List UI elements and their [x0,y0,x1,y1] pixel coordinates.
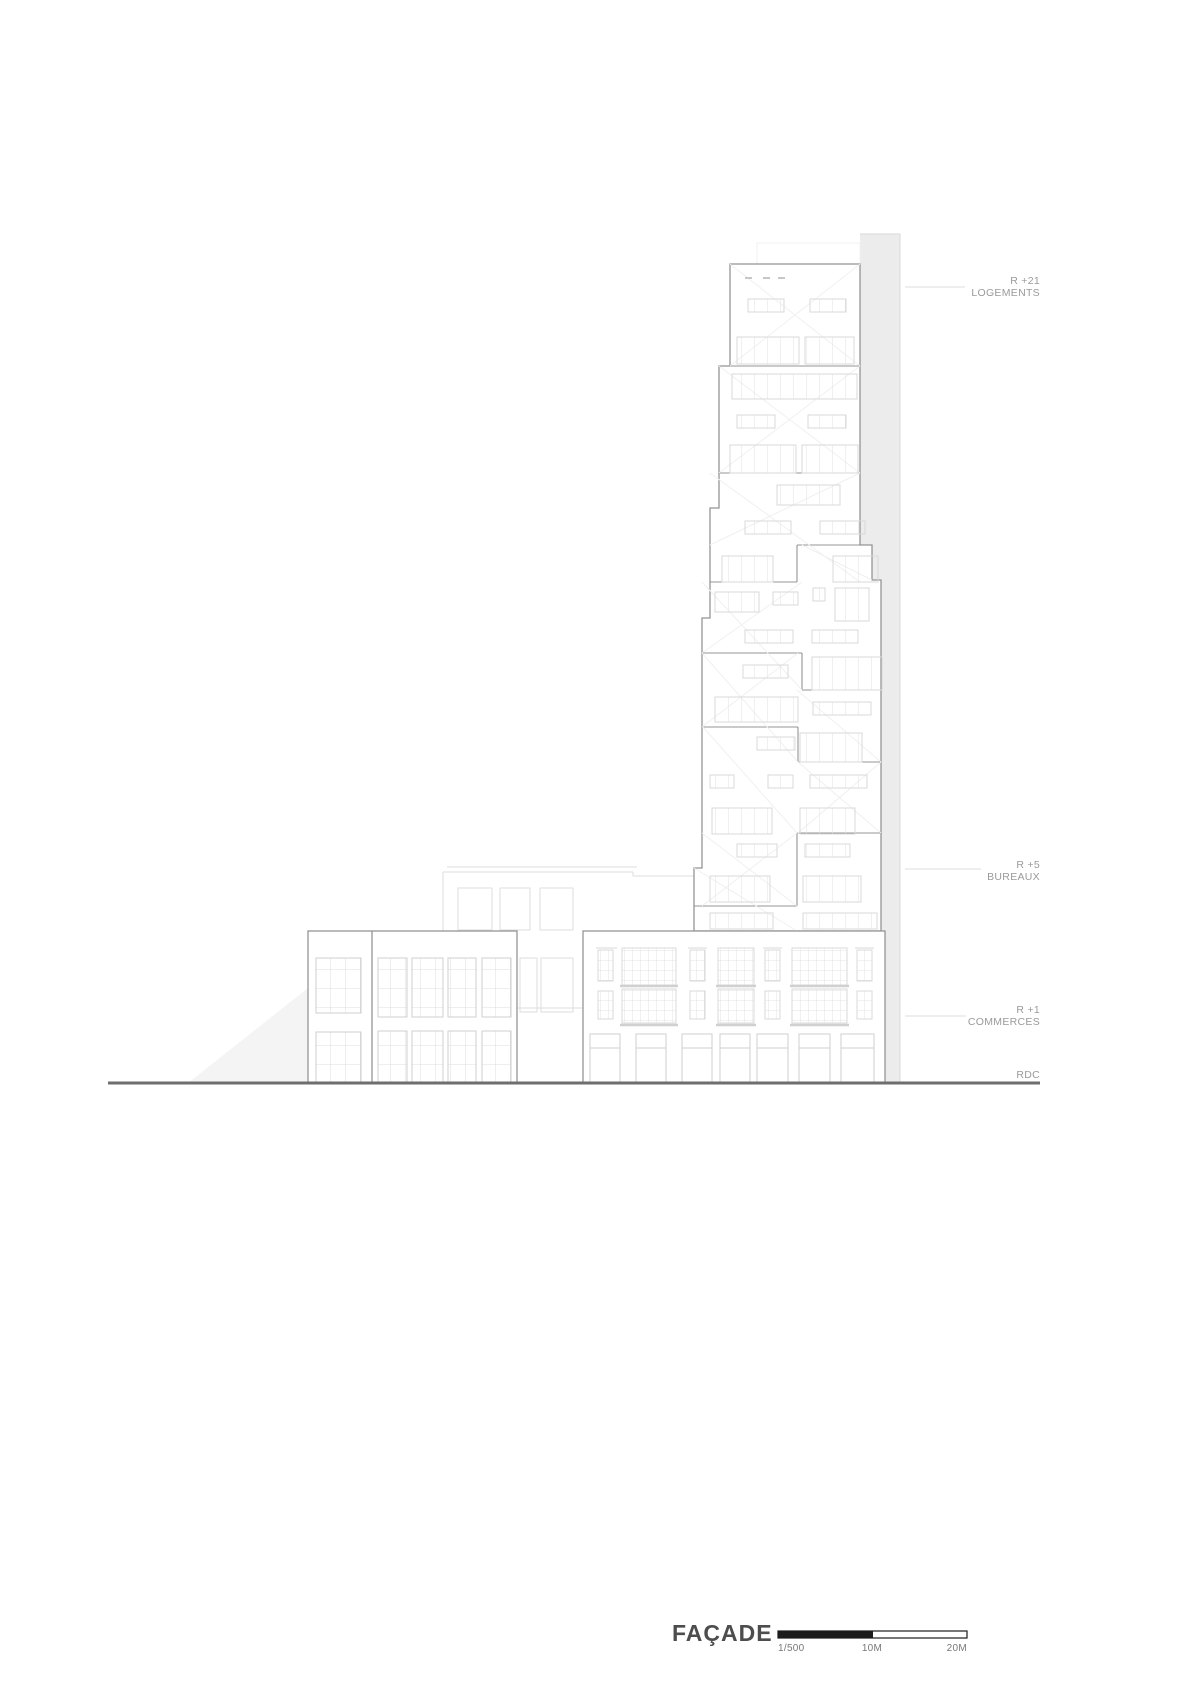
annotation-leaders [905,287,981,1016]
annotation-r1-level: R +1 [968,1004,1040,1016]
annotation-r21-use: LOGEMENTS [971,287,1040,299]
annotation-r5-level: R +5 [987,859,1040,871]
annotation-r5-use: BUREAUX [987,871,1040,883]
annotation-r1-use: COMMERCES [968,1016,1040,1028]
scale-bar [778,1631,967,1638]
scale-ratio-label: 1/500 [778,1643,805,1654]
elevation-drawing [0,0,1200,1697]
left-building [308,931,517,1083]
annotation-r21: R +21 LOGEMENTS [971,275,1040,299]
facade-elevation-sheet: R +21 LOGEMENTS R +5 BUREAUX R +1 COMMER… [0,0,1200,1697]
right-building [583,931,885,1083]
drawing-title: FAÇADE [672,1620,773,1647]
scale-end-label: 20M [927,1643,967,1654]
ground-wedge-shading [188,988,308,1083]
annotation-r21-level: R +21 [971,275,1040,287]
annotation-rdc: RDC [1016,1069,1040,1081]
annotation-r1: R +1 COMMERCES [968,1004,1040,1028]
tower-roof-faint-outline [757,243,860,264]
annotation-rdc-level: RDC [1016,1069,1040,1081]
scale-mid-label: 10M [852,1643,892,1654]
annotation-r5: R +5 BUREAUX [987,859,1040,883]
